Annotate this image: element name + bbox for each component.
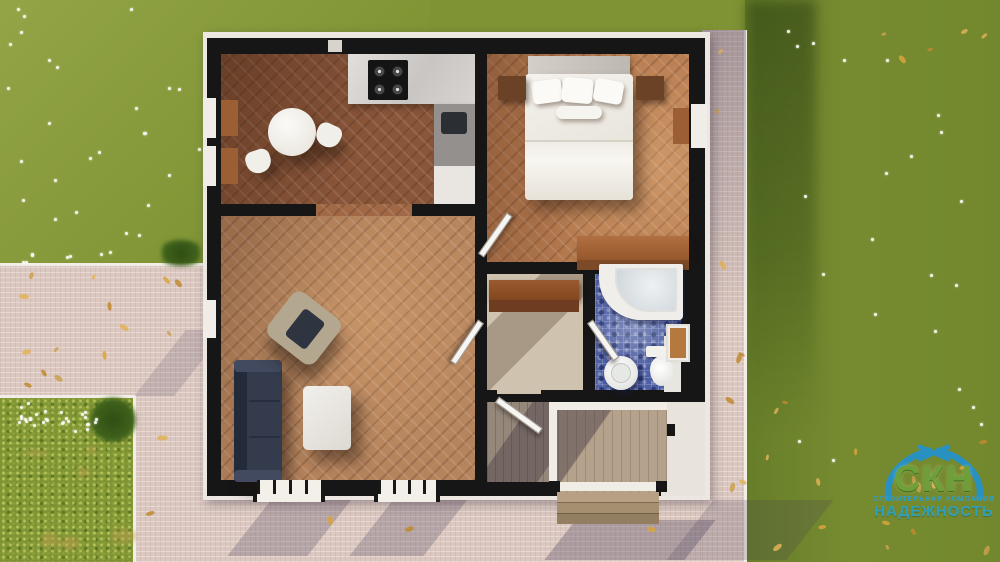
white-flower — [98, 151, 101, 154]
bedroom-window-sill — [673, 108, 689, 144]
fallen-leaf — [327, 516, 333, 527]
top-wall-vent — [328, 40, 342, 52]
wall-living-hall — [475, 274, 487, 316]
fallen-leaf — [818, 524, 827, 529]
white-flower — [60, 411, 63, 414]
fallen-leaf — [880, 32, 886, 36]
fallen-leaf — [961, 28, 969, 35]
white-flower — [100, 253, 103, 256]
white-flower — [798, 440, 801, 443]
kitchen-sink — [441, 112, 467, 134]
white-flower — [843, 59, 846, 62]
fallen-leaf — [815, 477, 821, 486]
dry-grass-patch — [23, 450, 49, 456]
white-flower — [812, 42, 815, 45]
fallen-leaf — [927, 47, 934, 52]
wall-bath-left — [583, 360, 595, 394]
white-flower — [67, 420, 70, 423]
fallen-leaf — [21, 349, 31, 355]
white-flower — [27, 402, 30, 405]
white-flower — [135, 107, 138, 110]
white-flower — [94, 421, 97, 424]
wardrobe-console-front — [489, 300, 579, 312]
dry-grass-patch — [77, 468, 89, 478]
sink-bowl — [611, 363, 631, 383]
porch-step — [557, 514, 659, 524]
porch-step — [557, 503, 659, 514]
fallen-leaf — [166, 330, 172, 337]
white-flower — [910, 155, 913, 158]
fallen-leaf — [53, 374, 63, 383]
stove — [368, 60, 408, 100]
fallen-leaf — [29, 272, 35, 280]
bathroom-window-sill — [670, 328, 686, 358]
kitchen-window — [203, 146, 216, 186]
white-flower — [930, 274, 933, 277]
white-flower — [130, 8, 133, 11]
white-flower — [17, 8, 20, 11]
white-flower — [832, 459, 835, 462]
white-flower — [74, 430, 77, 433]
white-flower — [147, 204, 150, 207]
porch-post — [656, 481, 667, 492]
porch-deck-shadow — [549, 410, 667, 492]
fallen-leaf — [725, 396, 736, 406]
white-flower — [54, 218, 57, 221]
company-caption: СТРОИТЕЛЬНАЯ КОМПАНИЯ — [873, 496, 995, 503]
dry-grass-patch — [41, 532, 58, 547]
white-flower — [48, 122, 51, 125]
bed-headboard — [528, 56, 630, 76]
kitchen-base-cabinet — [434, 166, 475, 204]
white-flower — [25, 420, 28, 423]
white-flower — [871, 238, 874, 241]
white-flower — [20, 417, 23, 420]
white-flower — [874, 313, 877, 316]
white-flower — [980, 423, 983, 426]
dresser-desk — [577, 236, 689, 260]
white-flower — [89, 157, 92, 160]
pillow — [561, 77, 594, 105]
white-flower — [95, 418, 98, 421]
wall-dining-living — [207, 204, 316, 216]
fallen-leaf — [738, 478, 747, 485]
white-flower — [885, 172, 888, 175]
pillow — [592, 78, 625, 106]
white-flower — [109, 251, 112, 254]
nightstand — [636, 76, 664, 100]
kitchen-window — [203, 98, 216, 138]
fallen-leaf — [718, 48, 724, 54]
fallen-leaf — [40, 369, 48, 378]
white-flower — [940, 131, 943, 134]
white-flower — [42, 421, 45, 424]
fallen-leaf — [145, 510, 155, 517]
white-flower — [84, 411, 87, 414]
nightstand — [498, 76, 526, 100]
wardrobe-console — [489, 280, 579, 300]
sofa-armrest — [234, 360, 282, 372]
white-flower — [7, 87, 10, 90]
dry-grass-patch — [111, 529, 136, 543]
white-flower — [86, 428, 89, 431]
fallen-leaf — [24, 382, 32, 389]
white-flower — [168, 87, 171, 90]
white-flower — [20, 160, 23, 163]
white-flower — [168, 174, 171, 177]
white-flower — [804, 195, 807, 198]
porch-post — [549, 481, 560, 492]
porch-rail-left — [549, 410, 557, 492]
wall-bath-left — [583, 274, 595, 316]
white-flower — [54, 179, 57, 182]
porch-step — [557, 492, 659, 503]
living-window-bottom — [378, 480, 436, 494]
dry-grass-patch — [59, 536, 80, 550]
white-flower — [56, 66, 59, 69]
sofa-cushion-seam — [249, 400, 280, 402]
white-flower — [84, 416, 87, 419]
wall-kitchen-bedroom — [475, 38, 487, 214]
white-flower — [960, 200, 963, 203]
white-flower — [66, 256, 69, 259]
white-flower — [86, 423, 89, 426]
white-flower — [22, 199, 25, 202]
white-flower — [44, 410, 47, 413]
fallen-leaf — [773, 407, 779, 414]
company-abbr: СКН — [894, 464, 974, 494]
fallen-leaf — [772, 543, 782, 552]
fallen-leaf — [53, 346, 60, 353]
white-flower — [9, 43, 12, 46]
fallen-leaf — [118, 323, 129, 333]
white-flower — [35, 413, 38, 416]
fallen-leaf — [980, 32, 987, 39]
fallen-leaf — [102, 351, 107, 360]
white-flower — [937, 114, 940, 117]
passage-floor — [316, 204, 412, 216]
fallen-leaf — [729, 482, 737, 493]
white-flower — [178, 88, 181, 91]
stove-burner — [392, 84, 403, 95]
white-flower — [25, 261, 28, 264]
fallen-leaf — [157, 434, 168, 440]
white-flower — [18, 421, 21, 424]
window-sill — [374, 494, 440, 502]
pillow — [531, 78, 564, 105]
white-flower — [198, 148, 201, 151]
dining-table — [268, 108, 316, 156]
bolster-pillow — [556, 106, 602, 119]
fallen-leaf — [173, 278, 183, 288]
white-flower — [62, 421, 65, 424]
company-name: НАДЕЖНОСТЬ — [874, 503, 993, 520]
porch-rail-top — [549, 402, 667, 410]
coffee-table — [303, 386, 351, 450]
fallen-leaf — [765, 454, 769, 461]
white-flower — [31, 254, 34, 257]
living-window-bottom — [257, 480, 321, 494]
porch-rail-bottom — [549, 482, 667, 491]
white-flower — [787, 30, 790, 33]
white-flower — [796, 45, 799, 48]
window-sill — [253, 494, 325, 502]
white-flower — [972, 406, 975, 409]
fallen-leaf — [978, 439, 987, 445]
fallen-leaf — [716, 108, 720, 114]
white-flower — [934, 330, 937, 333]
kitchen-window-sill — [221, 148, 238, 184]
white-flower — [48, 59, 51, 62]
fallen-leaf — [162, 276, 171, 285]
white-flower — [75, 211, 78, 214]
company-watermark: СКН СТРОИТЕЛЬНАЯ КОМПАНИЯ НАДЕЖНОСТЬ — [870, 446, 998, 550]
living-window-left — [203, 300, 216, 338]
white-flower — [125, 232, 128, 235]
fallen-leaf — [898, 54, 907, 64]
blanket — [525, 140, 633, 200]
wall-hall-entry — [541, 390, 583, 402]
white-flower — [65, 417, 68, 420]
fallen-leaf — [782, 400, 788, 404]
white-flower — [822, 273, 825, 276]
fallen-leaf — [718, 260, 727, 271]
bedroom-window-right — [691, 104, 707, 148]
white-flower — [886, 59, 889, 62]
stove-burner — [374, 66, 385, 77]
white-flower — [144, 132, 147, 135]
white-flower — [20, 406, 23, 409]
dry-grass-patch — [85, 446, 97, 454]
sofa-cushion-seam — [249, 436, 280, 438]
stove-burner — [374, 84, 385, 95]
white-flower — [69, 255, 72, 258]
kitchen-window-sill — [221, 100, 238, 136]
fallen-leaf — [107, 302, 112, 311]
porch-corner-patch — [661, 402, 705, 496]
fallen-leaf — [647, 526, 657, 533]
white-flower — [955, 284, 958, 287]
white-flower — [138, 234, 141, 237]
fallen-leaf — [854, 448, 858, 455]
fallen-leaf — [405, 525, 415, 532]
stove-burner — [392, 66, 403, 77]
white-flower — [33, 424, 36, 427]
sofa-backrest — [234, 362, 247, 482]
white-flower — [958, 388, 961, 391]
fallen-leaf — [19, 294, 29, 300]
white-flower — [23, 15, 26, 18]
white-flower — [20, 31, 23, 34]
fallen-leaf — [91, 275, 95, 281]
scene: СКН СТРОИТЕЛЬНАЯ КОМПАНИЯ НАДЕЖНОСТЬ — [0, 0, 1000, 562]
